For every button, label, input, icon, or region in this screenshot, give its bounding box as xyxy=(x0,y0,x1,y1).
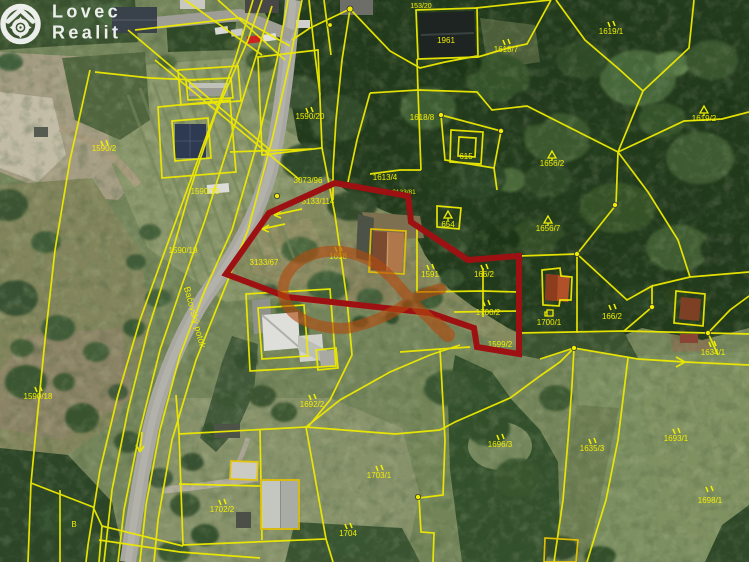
svg-text:1590/18: 1590/18 xyxy=(24,392,53,401)
svg-text:1618/8: 1618/8 xyxy=(410,113,435,122)
svg-text:1591: 1591 xyxy=(421,270,439,279)
svg-text:1619/1: 1619/1 xyxy=(599,27,624,36)
svg-text:3133/67: 3133/67 xyxy=(250,258,279,267)
svg-text:1613/4: 1613/4 xyxy=(373,173,398,182)
svg-text:153/20: 153/20 xyxy=(410,3,432,10)
svg-text:166/2: 166/2 xyxy=(474,270,495,279)
svg-text:1590/15: 1590/15 xyxy=(191,187,220,196)
svg-text:1703/1: 1703/1 xyxy=(367,471,392,480)
svg-text:3073/96: 3073/96 xyxy=(294,176,323,185)
svg-text:1700/2: 1700/2 xyxy=(476,308,501,317)
svg-text:1634/1: 1634/1 xyxy=(701,348,726,357)
svg-text:Realit: Realit xyxy=(52,23,121,43)
svg-text:1590/2: 1590/2 xyxy=(92,144,117,153)
svg-text:615: 615 xyxy=(459,152,473,161)
svg-text:1692/2: 1692/2 xyxy=(300,400,325,409)
svg-text:1618/7: 1618/7 xyxy=(494,45,519,54)
svg-text:1693/1: 1693/1 xyxy=(664,434,689,443)
svg-text:1635/3: 1635/3 xyxy=(580,444,605,453)
svg-text:Lovec: Lovec xyxy=(52,2,121,22)
svg-text:166/2: 166/2 xyxy=(602,312,623,321)
svg-text:B: B xyxy=(71,520,76,529)
svg-text:654: 654 xyxy=(441,220,455,229)
svg-text:1702/2: 1702/2 xyxy=(210,505,235,514)
svg-text:1704: 1704 xyxy=(339,529,357,538)
svg-text:1696/3: 1696/3 xyxy=(488,440,513,449)
svg-text:1961: 1961 xyxy=(437,36,455,45)
svg-text:1590/20: 1590/20 xyxy=(296,112,325,121)
svg-text:1590/19: 1590/19 xyxy=(169,246,198,255)
svg-text:1700/1: 1700/1 xyxy=(537,318,562,327)
svg-text:1698/1: 1698/1 xyxy=(698,496,723,505)
